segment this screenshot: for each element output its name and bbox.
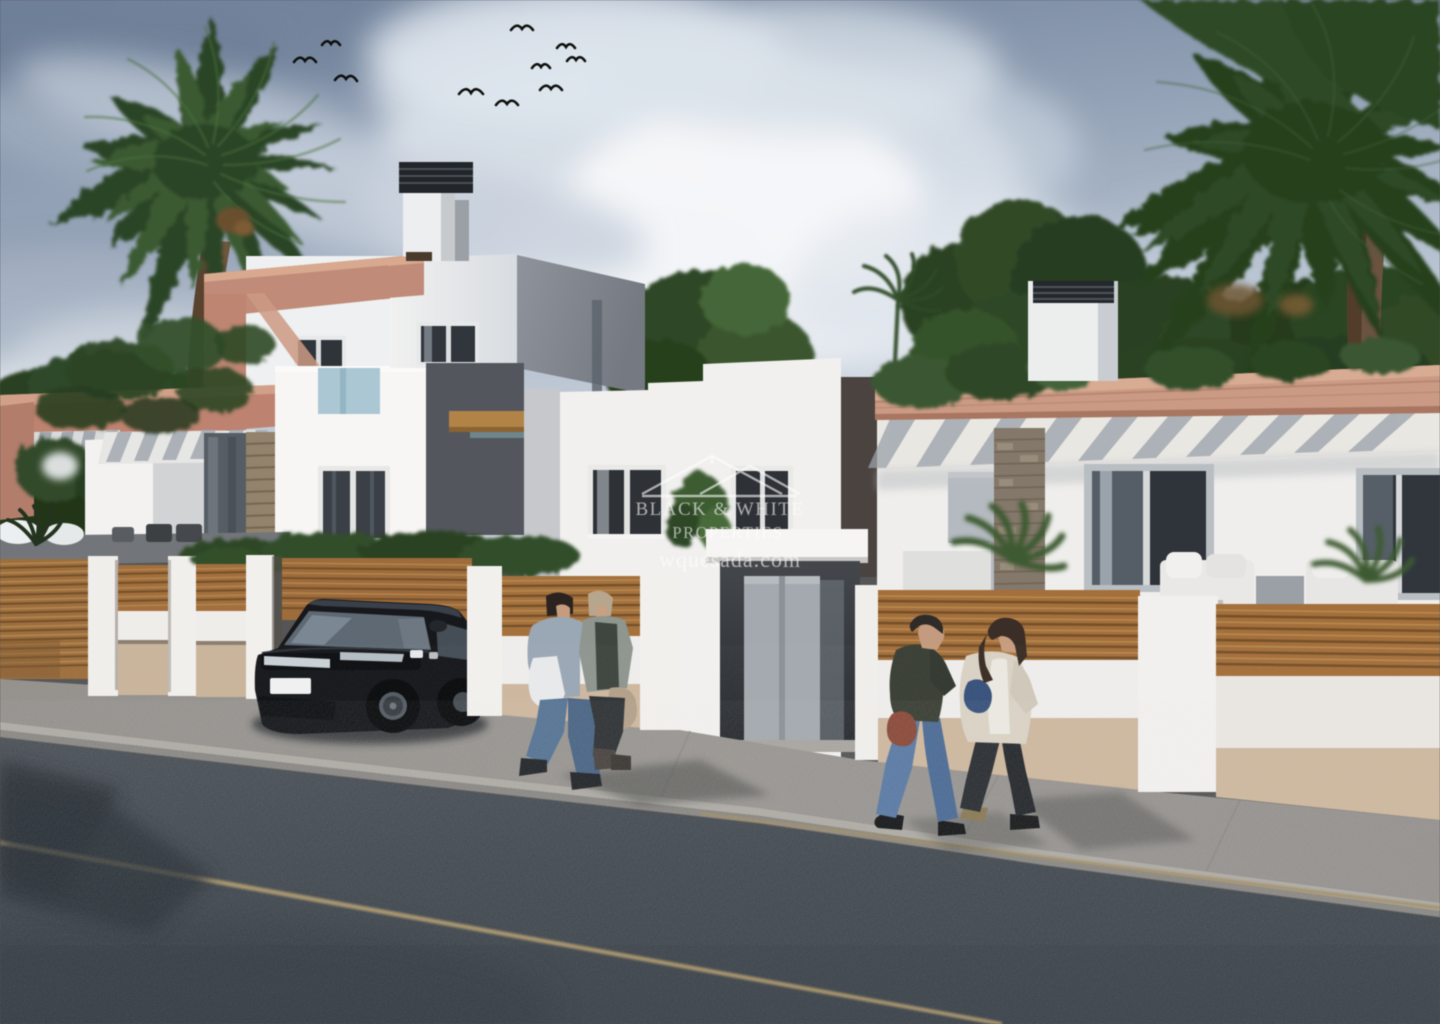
svg-text:wquesada.com: wquesada.com xyxy=(659,547,801,572)
svg-text:PROPERTIES: PROPERTIES xyxy=(672,523,783,542)
svg-text:BLACK & WHITE: BLACK & WHITE xyxy=(635,499,804,520)
